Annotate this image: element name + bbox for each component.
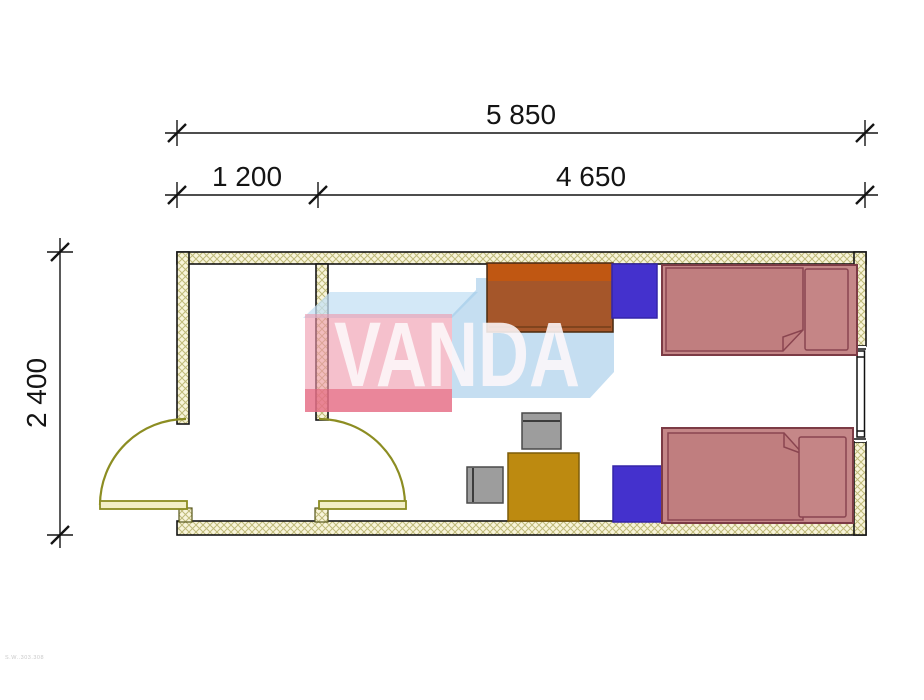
dimension-overall-width: 5 850 bbox=[165, 99, 878, 146]
interior-door-sill bbox=[315, 508, 328, 522]
floor-plan-canvas: VANDA 5 850 1 200 4 650 2 400 S.W..303.3… bbox=[0, 0, 924, 700]
dimension-segments: 1 200 4 650 bbox=[165, 161, 878, 208]
right-wall-lower bbox=[854, 442, 866, 535]
floor-plan-drawing: VANDA 5 850 1 200 4 650 2 400 bbox=[0, 0, 924, 700]
dim-label-depth: 2 400 bbox=[21, 358, 52, 428]
dim-label-entry-width: 1 200 bbox=[212, 161, 282, 192]
chair-top bbox=[522, 413, 561, 449]
left-wall bbox=[177, 252, 189, 424]
top-wall bbox=[177, 252, 866, 264]
sheet-code: S.W..303.308 bbox=[5, 655, 44, 661]
watermark-brand-text: VANDA bbox=[334, 304, 580, 406]
bed-bottom-pillow bbox=[799, 437, 846, 517]
window bbox=[854, 346, 866, 442]
entrance-door-leaf bbox=[100, 501, 187, 509]
nightstand-top bbox=[612, 264, 657, 318]
doors bbox=[100, 419, 406, 522]
interior-door-leaf bbox=[319, 501, 406, 509]
dim-label-overall-width: 5 850 bbox=[486, 99, 556, 130]
dim-label-room-width: 4 650 bbox=[556, 161, 626, 192]
table bbox=[508, 453, 579, 521]
dimension-depth: 2 400 bbox=[21, 238, 73, 548]
interior-door-swing-arc bbox=[319, 419, 405, 505]
bed-bottom-blanket bbox=[668, 433, 803, 520]
chair-top-seat bbox=[522, 413, 561, 449]
bed-top bbox=[662, 265, 857, 355]
bed-top-pillow bbox=[805, 269, 848, 350]
entrance-door-sill bbox=[179, 508, 192, 522]
entrance-door-swing-arc bbox=[100, 419, 186, 505]
wardrobe-top-strip bbox=[488, 264, 612, 281]
chair-side bbox=[467, 467, 503, 503]
bed-bottom bbox=[662, 428, 853, 523]
nightstand-bottom bbox=[613, 466, 662, 522]
